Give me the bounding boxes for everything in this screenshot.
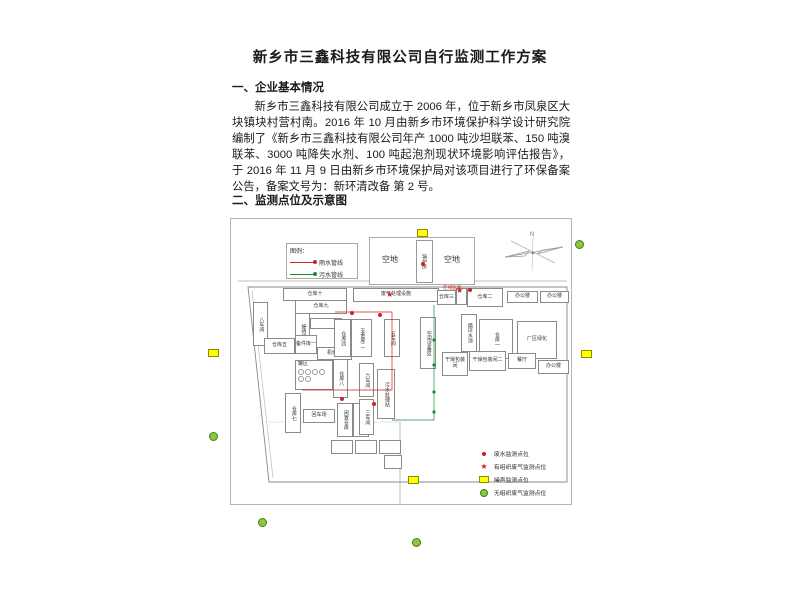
wastewater-monitoring-point [378, 313, 382, 317]
wastewater-monitoring-point [468, 288, 472, 292]
wastewater-monitoring-point [372, 402, 376, 406]
fugitive-gas-monitoring-point [209, 432, 218, 441]
wastewater-monitoring-point [350, 311, 354, 315]
wastewater-monitoring-point [421, 262, 425, 266]
noise-monitoring-point [208, 349, 219, 357]
document-page: { "document": { "title": "新乡市三鑫科技有限公司自行监… [0, 0, 800, 600]
noise-monitoring-point [408, 476, 419, 484]
fugitive-gas-monitoring-point [258, 518, 267, 527]
stack-gas-monitoring-point: ★ [386, 291, 393, 299]
fugitive-gas-monitoring-point [412, 538, 421, 547]
wastewater-monitoring-point [340, 397, 344, 401]
noise-monitoring-point [581, 350, 592, 358]
fugitive-gas-monitoring-point [575, 240, 584, 249]
noise-monitoring-point [417, 229, 428, 237]
online-monitoring-label: 在线监测 [443, 285, 461, 291]
pipeline-overlay [0, 0, 800, 600]
